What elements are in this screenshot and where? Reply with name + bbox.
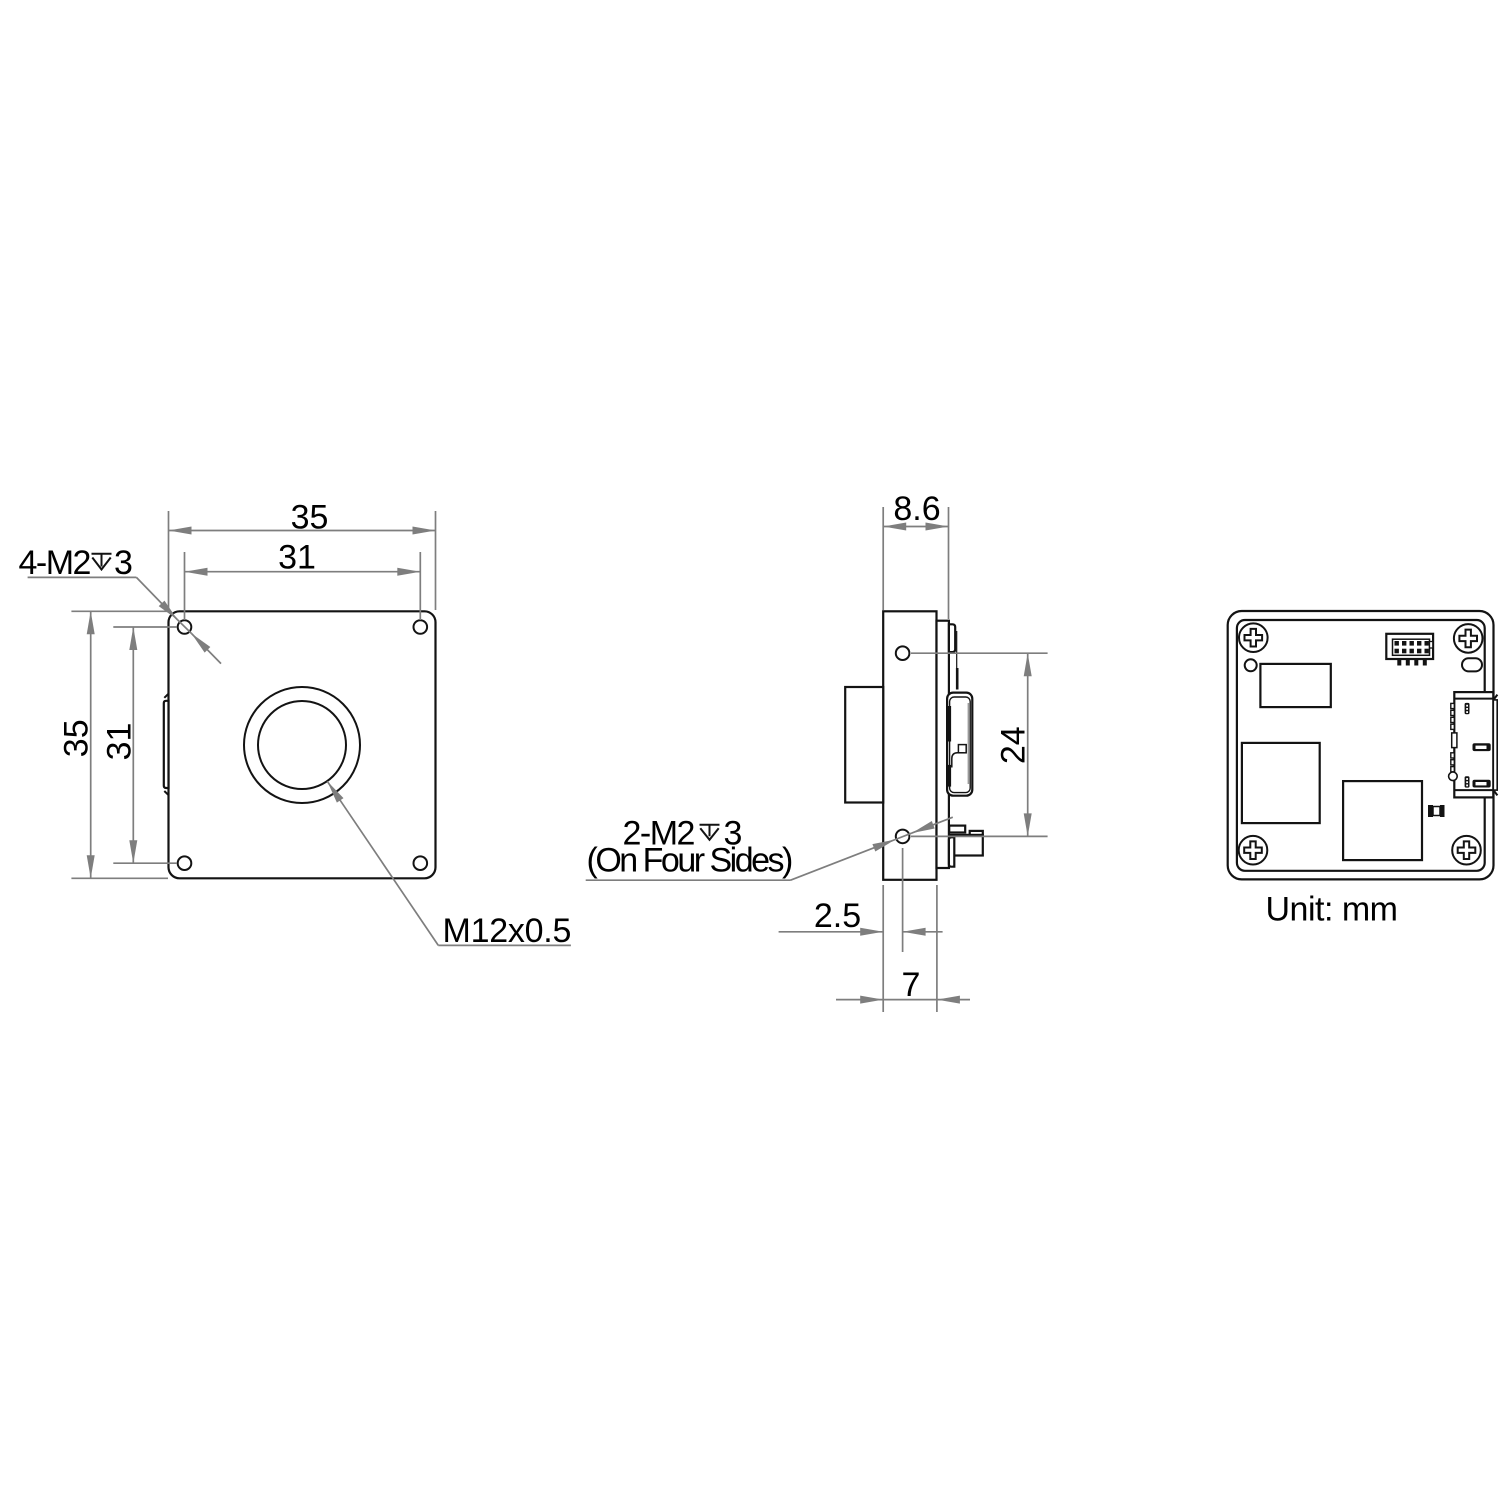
- svg-text:M12x0.5: M12x0.5: [443, 912, 572, 950]
- svg-text:(On Four Sides): (On Four Sides): [587, 842, 793, 880]
- svg-text:3: 3: [114, 544, 133, 582]
- svg-text:31: 31: [278, 539, 316, 577]
- svg-text:35: 35: [58, 719, 96, 757]
- svg-text:31: 31: [101, 723, 139, 761]
- svg-text:7: 7: [902, 966, 921, 1004]
- svg-text:24: 24: [995, 726, 1033, 764]
- svg-text:8.6: 8.6: [893, 490, 940, 528]
- svg-text:2.5: 2.5: [814, 897, 861, 935]
- svg-text:35: 35: [291, 499, 329, 537]
- svg-text:4-M2: 4-M2: [19, 544, 91, 582]
- svg-text:Unit: mm: Unit: mm: [1266, 891, 1398, 929]
